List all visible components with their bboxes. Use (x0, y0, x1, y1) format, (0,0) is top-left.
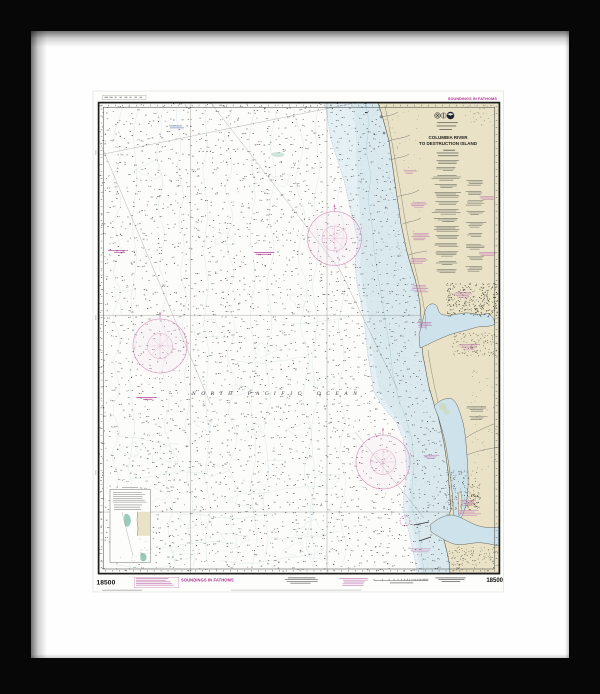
svg-text:18500: 18500 (97, 579, 116, 586)
svg-text:COLUMBIA RIVER: COLUMBIA RIVER (428, 135, 468, 140)
svg-text:SOUNDINGS IN FATHOMS: SOUNDINGS IN FATHOMS (448, 97, 498, 101)
svg-text:TO DESTRUCTION ISLAND: TO DESTRUCTION ISLAND (419, 141, 478, 146)
svg-text:NORTH PACIFIC OCEAN: NORTH PACIFIC OCEAN (191, 391, 362, 397)
svg-text:SOUNDINGS IN FATHOMS: SOUNDINGS IN FATHOMS (181, 578, 234, 583)
svg-text:18500: 18500 (486, 578, 503, 584)
